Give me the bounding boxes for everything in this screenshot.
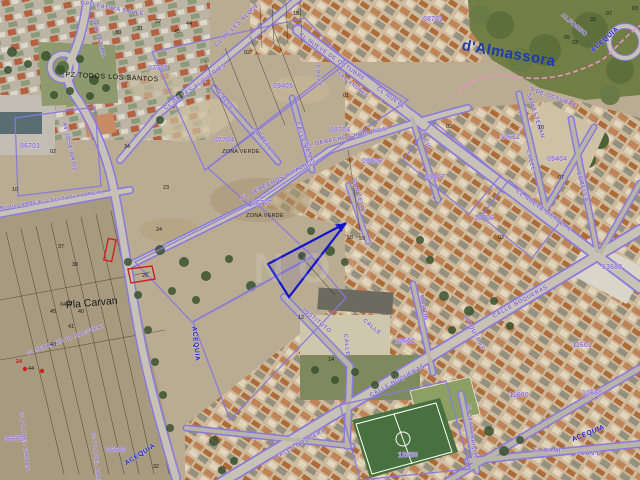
- parcel-number: 32: [153, 464, 159, 470]
- sector-code: 11601: [572, 340, 592, 349]
- sector-code: 07704: [214, 135, 234, 144]
- parcel-number: 02: [498, 235, 504, 241]
- parcel-number: 37: [58, 244, 64, 250]
- red-parcel-number: 24: [16, 359, 22, 365]
- sector-code: 07705: [148, 63, 168, 72]
- parcel-number: 45: [50, 309, 56, 315]
- parcel-number: 07: [606, 11, 612, 17]
- parcel-number: 58: [347, 235, 353, 241]
- map-viewport[interactable]: NOS d'Almassora Pla Carvan PZ TODOS LOS …: [0, 0, 640, 480]
- parcel-number: 24: [156, 227, 162, 233]
- red-dot: [23, 367, 27, 371]
- parcel-number: 02: [446, 124, 452, 130]
- sector-code: 08701: [423, 14, 443, 23]
- parcel-number: 44: [186, 21, 192, 27]
- street-label: JUAN D: [577, 451, 602, 458]
- sector-code: 10612: [500, 132, 520, 141]
- sector-code: 11680: [509, 390, 529, 399]
- sector-code: 06680: [106, 445, 126, 454]
- parcel-number: 33: [590, 17, 596, 23]
- parcel-number: 45: [174, 29, 180, 35]
- sector-code: 09407: [425, 172, 445, 181]
- parcel-number: 23: [163, 185, 169, 191]
- sector-code: 10706: [474, 213, 494, 222]
- sector-code: 12680: [398, 450, 418, 459]
- parcel-number: 44: [28, 366, 34, 372]
- parcel-number: 0469: [60, 302, 72, 308]
- parcel-number: 02: [50, 149, 56, 155]
- watermark: NOS: [253, 244, 386, 291]
- sector-code: 06701: [20, 141, 40, 150]
- sector-code: 13680: [602, 262, 622, 271]
- sector-code: 07707: [252, 198, 272, 207]
- parcel-number: 02: [572, 40, 578, 46]
- parcel-number: 22: [155, 19, 161, 25]
- sector-code: 10680: [582, 388, 602, 397]
- red-dot: [40, 369, 44, 373]
- parcel-number: 14: [328, 357, 334, 363]
- sector-code: 09404: [547, 154, 567, 163]
- parcel-number: 03: [632, 6, 638, 12]
- parcel-number: 65: [564, 35, 570, 41]
- parcel-number: 10: [12, 187, 18, 193]
- parcel-number: 26: [142, 273, 148, 279]
- parcel-number: 21: [137, 26, 143, 32]
- sector-code: 09406: [362, 156, 382, 165]
- parcel-number: 10: [538, 125, 544, 131]
- parcel-number: 07: [558, 175, 564, 181]
- street-label: EL CAMI: [533, 448, 561, 455]
- sector-code: 10601: [395, 336, 415, 345]
- cadastral-map: NOS d'Almassora Pla Carvan PZ TODOS LOS …: [0, 0, 640, 480]
- parcel-number: 02: [244, 50, 250, 56]
- zone-label: ZONA VERDE: [222, 149, 260, 155]
- parcel-number: 01: [343, 93, 349, 99]
- parcel-number: 43: [50, 342, 56, 348]
- parcel-number: 30: [115, 30, 121, 36]
- parcel-number: 12: [298, 315, 304, 321]
- parcel-number: 59: [359, 236, 365, 242]
- parcel-number: 38: [72, 262, 78, 268]
- parcel-number: 41: [68, 324, 74, 330]
- parcel-number: 40: [78, 309, 84, 315]
- sector-code: 09405: [273, 81, 293, 90]
- zone-label: ZONA VERDE: [246, 213, 284, 219]
- parcel-number: 34: [124, 144, 130, 150]
- parcel-number: 18: [293, 11, 299, 17]
- sector-code: 08704: [330, 125, 350, 134]
